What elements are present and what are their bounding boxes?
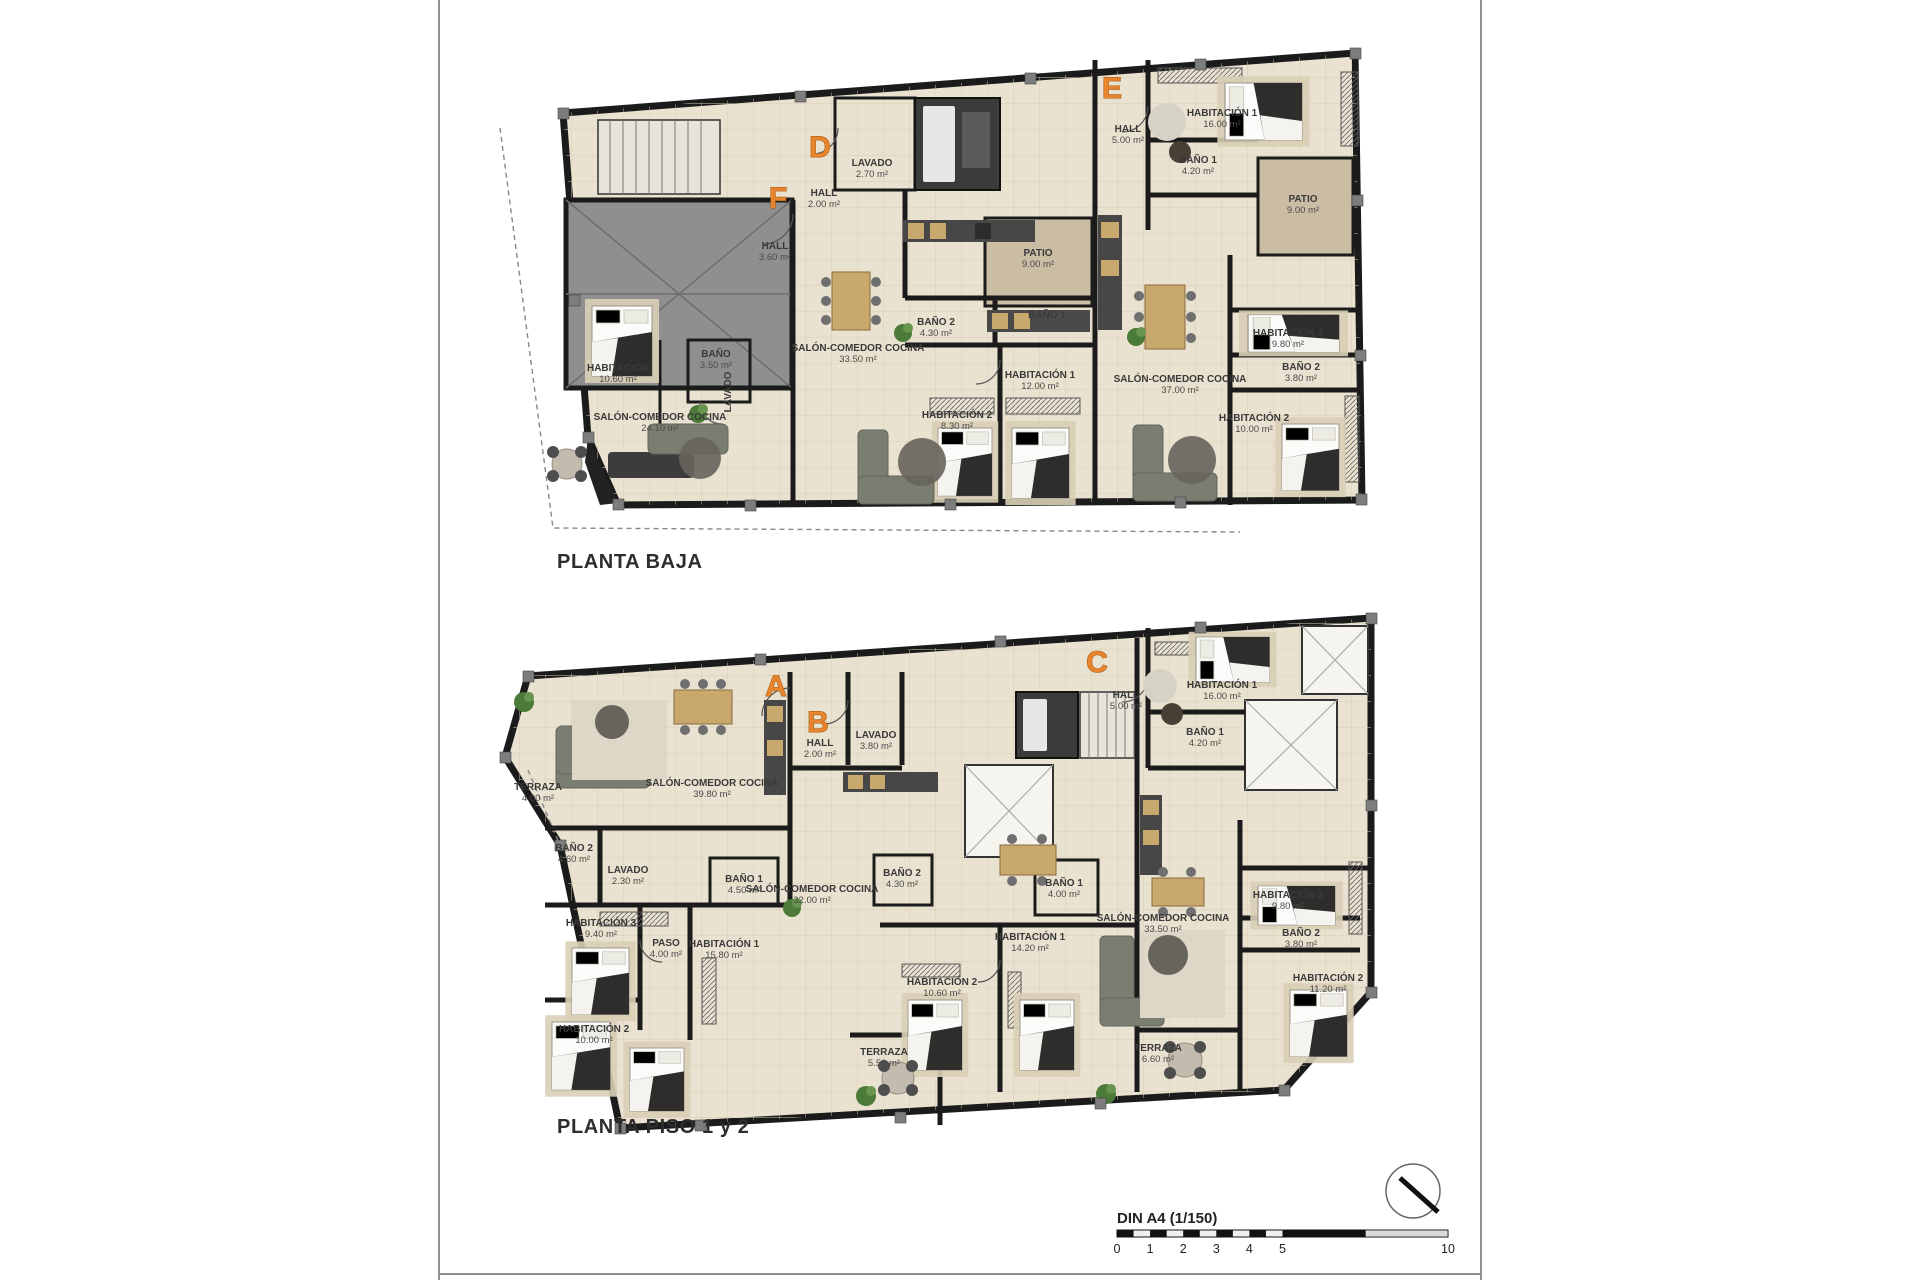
room-label: PASO4.00 m² — [650, 938, 682, 960]
unit-letter-E: E — [1102, 72, 1122, 105]
room-label: BAÑO 23.80 m² — [1282, 926, 1320, 950]
room-label: PATIO9.00 m² — [1022, 248, 1054, 270]
room-label: PATIO9.00 m² — [1287, 194, 1319, 216]
staircase — [598, 120, 720, 194]
scale-tick: 1 — [1147, 1242, 1154, 1256]
room-label: BAÑO3.50 m² — [700, 347, 732, 371]
scale-tick: 10 — [1441, 1242, 1455, 1256]
scale-tick: 4 — [1246, 1242, 1253, 1256]
room-label: LAVADO2.70 m² — [852, 158, 893, 180]
room-label: BAÑO 14.00 m² — [1045, 876, 1083, 900]
north-indicator — [1386, 1164, 1440, 1218]
elevator-core — [1016, 692, 1078, 758]
plan-planta-piso: PLANTA PISO 1 y 2 TERRAZA4.00 m²SALÓN-CO… — [500, 613, 1377, 1138]
plan-title-planta-piso: PLANTA PISO 1 y 2 — [557, 1116, 749, 1138]
room-label: LAVADO3.80 m² — [856, 730, 897, 752]
unit-letter-D: D — [809, 131, 831, 164]
room-label: BAÑO 14.00 m² — [1028, 308, 1066, 332]
room-label: BAÑO 14.20 m² — [1179, 153, 1217, 177]
room-label: BAÑO 24.30 m² — [883, 866, 921, 890]
unit-letter-B: B — [807, 706, 829, 739]
room-label: BAÑO 14.20 m² — [1186, 725, 1224, 749]
unit-letter-A: A — [765, 670, 787, 703]
scale-tick: 0 — [1114, 1242, 1121, 1256]
room-label: BAÑO 24.60 m² — [555, 841, 593, 865]
room-label: HALL2.00 m² — [808, 188, 840, 210]
plan-planta-baja: PLANTA BAJA HALL3.60 m²HABITACIÓN10.60 m… — [500, 48, 1367, 573]
room-label: BAÑO 23.80 m² — [1282, 360, 1320, 384]
unit-letter-F: F — [769, 182, 787, 215]
scale-label: DIN A4 (1/150) — [1117, 1210, 1217, 1227]
floorplan-canvas: PLANTA BAJA HALL3.60 m²HABITACIÓN10.60 m… — [0, 0, 1920, 1280]
scale-tick: 3 — [1213, 1242, 1220, 1256]
scale-tick: 5 — [1279, 1242, 1286, 1256]
room-label: HALL5.00 m² — [1110, 690, 1142, 712]
room-label: LAVADO2.30 m² — [608, 865, 649, 887]
room-label: HALL5.00 m² — [1112, 124, 1144, 146]
plan-title-planta-baja: PLANTA BAJA — [557, 551, 703, 573]
scale-tick: 2 — [1180, 1242, 1187, 1256]
room-label: HALL2.00 m² — [804, 738, 836, 760]
room-label: BAÑO 24.30 m² — [917, 315, 955, 339]
room-label: LAVADO — [723, 371, 734, 412]
room-label: HALL3.60 m² — [759, 241, 791, 263]
unit-letter-C: C — [1086, 646, 1108, 679]
drawing-sheet: PLANTA BAJA HALL3.60 m²HABITACIÓN10.60 m… — [0, 0, 1920, 1280]
